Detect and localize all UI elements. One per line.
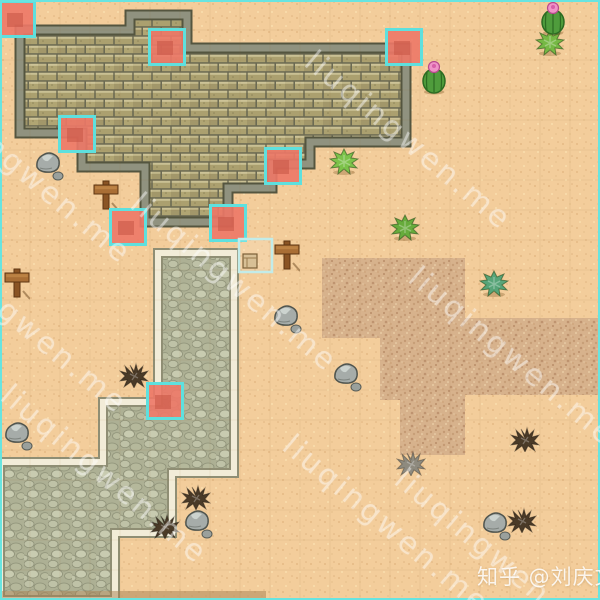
tile-grid (0, 0, 600, 600)
selected-tile-marker[interactable] (150, 30, 185, 65)
cursor-tile[interactable] (239, 239, 272, 272)
selected-tile-marker[interactable] (211, 206, 246, 241)
game-map-canvas[interactable] (0, 0, 600, 600)
selected-tile-marker[interactable] (60, 117, 95, 152)
map-screenshot: liuqingwen.meliuqingwen.meliuqingwen.mel… (0, 0, 600, 600)
dirt-patch (400, 395, 465, 455)
selected-tile-marker[interactable] (387, 30, 422, 65)
crate-icon (243, 254, 257, 268)
selected-tile-marker[interactable] (0, 2, 35, 37)
selected-tile-marker[interactable] (111, 210, 146, 245)
selected-tile-marker[interactable] (148, 384, 183, 419)
dirt-patch (380, 338, 465, 400)
selected-tile-marker[interactable] (266, 149, 301, 184)
